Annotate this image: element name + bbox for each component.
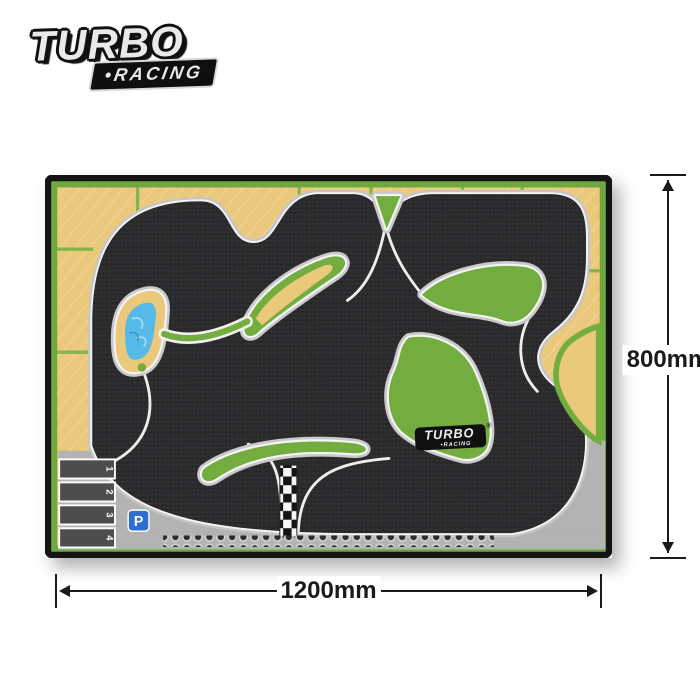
width-dimension-label: 1200mm <box>276 576 380 606</box>
track-mat-graphic: 1 2 3 4 P TURBO •RACING ® <box>45 175 612 558</box>
brand-logo-secondary: •RACING <box>88 57 220 92</box>
asphalt-track <box>92 194 586 533</box>
dimension-tick <box>55 574 57 608</box>
dimension-tick <box>650 174 686 176</box>
tire-wall <box>163 535 494 546</box>
finish-line <box>280 465 297 537</box>
product-image: TURBO •RACING <box>0 0 700 700</box>
brand-logo: TURBO •RACING <box>29 18 251 94</box>
pit-slot-number: 1 <box>103 466 114 472</box>
pit-slot-number: 3 <box>103 512 114 517</box>
parking-sign-label: P <box>134 514 144 530</box>
arrow-right-icon <box>587 585 598 597</box>
dimension-tick <box>600 574 602 608</box>
mat-badge-primary: TURBO <box>424 425 475 443</box>
width-dimension: 1200mm <box>45 572 612 618</box>
arrow-left-icon <box>59 585 70 597</box>
height-dimension-label: 800mm <box>623 345 700 375</box>
track-mat: 1 2 3 4 P TURBO •RACING ® <box>45 175 612 558</box>
pit-slot-number: 2 <box>103 489 114 494</box>
arrow-down-icon <box>662 542 674 553</box>
parking-sign: P <box>128 510 149 531</box>
height-dimension: 800mm <box>628 168 700 568</box>
dimension-tick <box>650 557 686 559</box>
arrow-up-icon <box>662 180 674 191</box>
pit-slot-number: 4 <box>103 535 114 541</box>
